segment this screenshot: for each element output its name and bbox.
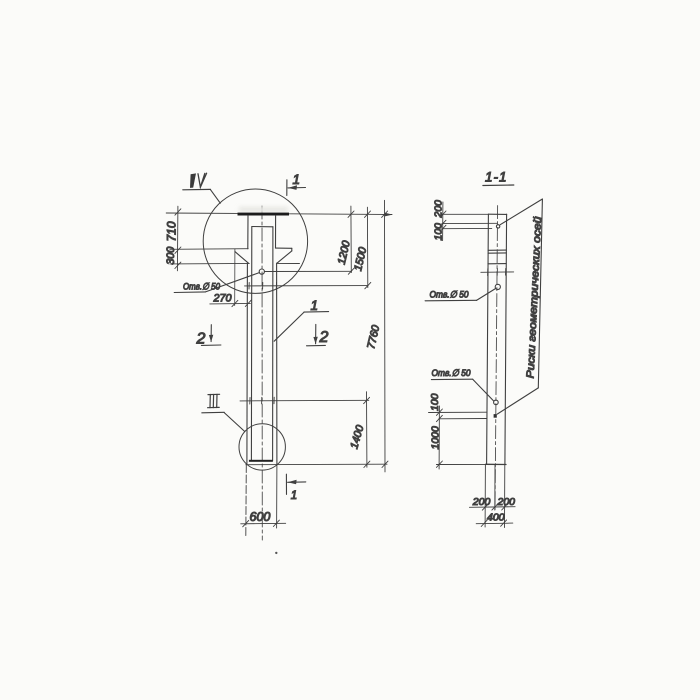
svg-text:200: 200	[472, 496, 491, 508]
svg-text:Отв.∅ 50: Отв.∅ 50	[183, 281, 221, 292]
svg-text:710: 710	[165, 221, 179, 241]
svg-text:1-1: 1-1	[485, 170, 508, 185]
svg-text:2: 2	[319, 329, 329, 346]
svg-text:600: 600	[250, 510, 271, 524]
svg-text:1000: 1000	[430, 426, 442, 450]
svg-text:200: 200	[497, 496, 516, 508]
svg-text:300: 300	[165, 247, 177, 265]
svg-text:400: 400	[487, 512, 505, 524]
svg-text:1: 1	[311, 298, 319, 313]
svg-text:1: 1	[293, 172, 301, 187]
svg-text:100: 100	[429, 393, 441, 411]
svg-text:Отв.∅ 50: Отв.∅ 50	[430, 289, 470, 300]
svg-text:1: 1	[291, 490, 297, 502]
svg-text:270: 270	[213, 292, 232, 304]
svg-text:100: 100	[433, 223, 445, 241]
svg-text:Отв.∅ 50: Отв.∅ 50	[432, 368, 472, 379]
svg-text:200: 200	[433, 200, 445, 219]
